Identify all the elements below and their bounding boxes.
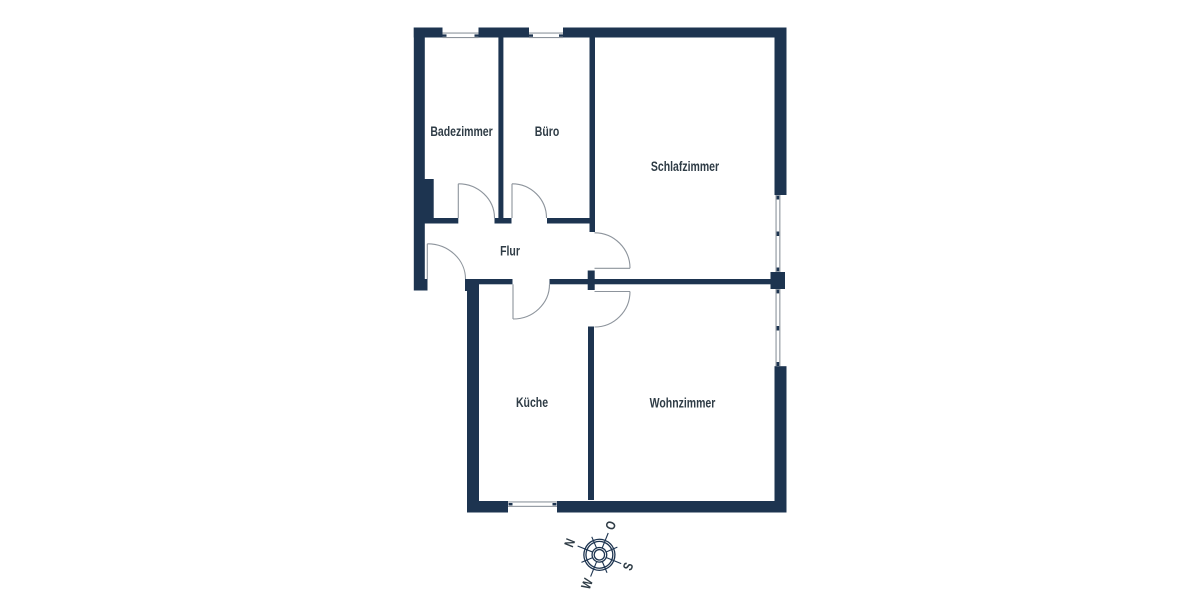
svg-text:Flur: Flur xyxy=(500,243,520,259)
svg-text:Wohnzimmer: Wohnzimmer xyxy=(650,395,716,411)
svg-text:W: W xyxy=(578,576,596,592)
svg-text:Büro: Büro xyxy=(535,124,560,140)
svg-text:N: N xyxy=(561,536,578,549)
svg-text:Schlafzimmer: Schlafzimmer xyxy=(651,158,719,174)
svg-text:Badezimmer: Badezimmer xyxy=(430,124,493,140)
svg-text:Küche: Küche xyxy=(516,395,548,411)
svg-text:O: O xyxy=(602,519,619,533)
svg-text:S: S xyxy=(620,560,637,572)
